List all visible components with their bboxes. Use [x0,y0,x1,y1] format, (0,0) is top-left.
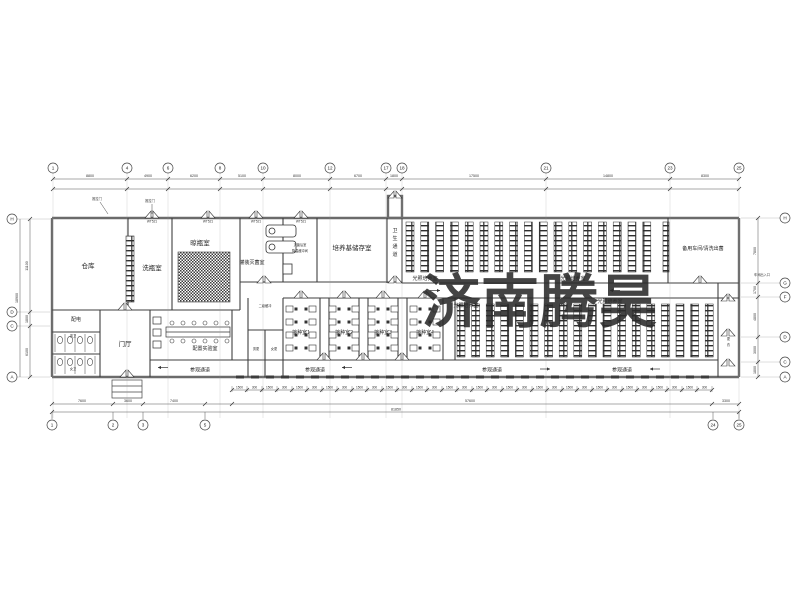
culture-rack [495,222,503,272]
culture-rack [584,222,592,272]
svg-text:WT521: WT521 [251,220,262,224]
svg-text:300: 300 [462,386,468,390]
window-symbol [596,376,604,379]
svg-text:1500: 1500 [596,386,603,390]
svg-text:18900: 18900 [15,293,19,303]
svg-text:300: 300 [642,386,648,390]
window-symbol [626,376,634,379]
door-symbol [693,276,707,283]
culture-rack [510,222,518,272]
culture-rack [554,222,562,272]
room-label-men-toilet: 男卫 [70,333,77,338]
window-symbol [386,376,394,379]
svg-text:1500: 1500 [356,386,363,390]
floorplan-drawing: 仓库 洗瓶室 晾瓶室 灌装灭菌室 灭菌后室 降温缓冲间 培养基储存室 卫生通道 … [0,0,800,600]
window-symbol [581,376,589,379]
svg-text:1500: 1500 [506,386,513,390]
svg-text:1500: 1500 [386,386,393,390]
window-symbol [236,376,244,379]
svg-text:81850: 81850 [391,408,401,412]
svg-text:1500: 1500 [266,386,273,390]
room-label-changing-corridor: 更衣 [727,336,731,347]
label-sliding-door-1: 推拉门 [92,196,102,201]
svg-text:3: 3 [142,423,145,428]
svg-text:300: 300 [672,386,678,390]
culture-rack [465,222,473,272]
svg-text:11100: 11100 [25,261,29,270]
svg-text:6: 6 [167,166,170,171]
door-symbol [721,359,735,366]
svg-text:21: 21 [543,166,549,171]
window-symbol [311,376,319,379]
svg-text:14800: 14800 [603,174,613,178]
window-symbol [266,376,274,379]
culture-rack [436,222,444,272]
svg-text:1500: 1500 [326,386,333,390]
window-symbol [341,376,349,379]
svg-text:300: 300 [312,386,318,390]
culture-rack [539,222,547,272]
svg-text:4800: 4800 [753,313,757,321]
svg-text:8800: 8800 [86,174,94,178]
svg-text:4: 4 [126,166,129,171]
svg-text:3000: 3000 [753,346,757,354]
svg-text:1500: 1500 [236,386,243,390]
svg-text:300: 300 [342,386,348,390]
svg-text:6700: 6700 [354,174,362,178]
svg-text:8300: 8300 [701,174,709,178]
svg-text:25: 25 [736,423,742,428]
svg-text:1500: 1500 [566,386,573,390]
svg-text:3600: 3600 [124,399,132,403]
window-symbol [416,376,424,379]
lab-bench [153,317,230,348]
room-label-visitor_corridor: 参观通道 [305,367,325,374]
door-symbol [337,291,351,298]
room-label-visitor_corridor: 参观通道 [482,367,502,374]
svg-text:300: 300 [702,386,708,390]
svg-text:2: 2 [112,423,115,428]
svg-text:300: 300 [582,386,588,390]
watermark-text: 济南腾昊 [422,270,658,335]
culture-rack [661,304,669,357]
svg-text:10: 10 [260,166,266,171]
room-label-prep-lab: 配置实验室 [192,345,217,352]
room-label-women-toilet: 女卫 [70,366,77,371]
window-symbol [326,376,334,379]
svg-text:8000: 8000 [293,174,301,178]
svg-text:1500: 1500 [416,386,423,390]
svg-text:24: 24 [710,423,716,428]
window-symbol [476,376,484,379]
culture-rack [421,222,429,272]
window-symbol [671,376,679,379]
window-symbol [461,376,469,379]
svg-text:300: 300 [252,386,258,390]
svg-text:300: 300 [552,386,558,390]
culture-rack [628,222,636,272]
svg-text:1: 1 [52,166,55,171]
svg-text:23: 23 [667,166,673,171]
svg-text:57600: 57600 [465,399,475,403]
svg-text:1800: 1800 [25,315,29,323]
svg-text:5100: 5100 [238,174,246,178]
culture-rack [480,222,488,272]
culture-rack [676,304,684,357]
room-label-secondary-buffer: 二级缓冲 [259,303,272,308]
culture-rack [643,222,651,272]
svg-text:25: 25 [736,166,742,171]
svg-text:F: F [784,295,787,300]
window-symbol [536,376,544,379]
leader-lines [100,202,152,214]
door-symbol [294,291,308,298]
svg-text:3300: 3300 [722,399,730,403]
label-sliding-door-2: 推拉门 [145,198,155,203]
generated-details: 14681012171821232512352425HDCAHGFDCA8800… [7,163,790,430]
svg-text:1500: 1500 [296,386,303,390]
door-symbol [118,303,132,310]
culture-rack [691,304,699,357]
window-symbol [446,376,454,379]
room-label-men-changing: 男更 [253,346,260,351]
room-label-spare-workshop: 备用车间/清洗出菌 [682,245,723,252]
window-symbol [611,376,619,379]
svg-text:7400: 7400 [170,399,178,403]
svg-text:300: 300 [432,386,438,390]
room-label-visitor_corridor: 参观通道 [190,367,210,374]
svg-text:300: 300 [522,386,528,390]
floorplan-sheet: 仓库 洗瓶室 晾瓶室 灌装灭菌室 灭菌后室 降温缓冲间 培养基储存室 卫生通道 … [0,0,800,600]
door-symbol [376,291,390,298]
svg-text:300: 300 [282,386,288,390]
room-label-bottle-wash: 洗瓶室 [142,263,162,272]
svg-text:1500: 1500 [686,386,693,390]
room-label-hygiene-corridor: 卫生通道 [392,228,397,258]
svg-text:7600: 7600 [78,399,86,403]
window-symbol [296,376,304,379]
window-symbol [656,376,664,379]
room-label-medium-storage: 培养基储存室 [333,243,373,252]
window-symbol [491,376,499,379]
svg-text:1: 1 [51,423,54,428]
window-symbol [431,376,439,379]
window-symbol [371,376,379,379]
svg-text:WT521: WT521 [296,220,307,224]
room-label-warehouse: 仓库 [82,261,96,270]
room-label-bottle-dry: 晾瓶室 [190,238,210,247]
window-symbol [551,376,559,379]
svg-text:H: H [10,217,13,222]
svg-text:1500: 1500 [446,386,453,390]
window-symbol [401,376,409,379]
svg-text:5: 5 [204,423,207,428]
window-symbol [521,376,529,379]
room-label-cooling-buffer: 降温缓冲间 [292,248,308,253]
room-label-filling-sterilize: 灌装灭菌室 [239,259,264,266]
culture-rack [524,222,532,272]
svg-text:17: 17 [383,166,389,171]
svg-text:7800: 7800 [753,247,757,255]
window-symbol [251,376,259,379]
svg-text:1800: 1800 [753,366,757,374]
label-workshop-entrance: 车间出入口 [754,272,770,277]
svg-text:300: 300 [492,386,498,390]
culture-rack [705,304,713,357]
culture-rack [406,222,414,272]
room-label-power-room: 配电 [71,316,81,323]
svg-text:12: 12 [327,166,333,171]
window-symbol [686,376,694,379]
svg-text:300: 300 [402,386,408,390]
svg-text:300: 300 [372,386,378,390]
svg-text:300: 300 [612,386,618,390]
window-symbol [566,376,574,379]
svg-text:4900: 4900 [144,174,152,178]
svg-text:1500: 1500 [626,386,633,390]
svg-text:18: 18 [399,166,405,171]
culture-rack [450,222,458,272]
svg-text:17500: 17500 [469,174,479,178]
window-symbol [641,376,649,379]
culture-rack [569,222,577,272]
room-label-entrance-hall: 门厅 [119,339,133,348]
culture-rack [613,222,621,272]
svg-text:8: 8 [219,166,222,171]
svg-text:1700: 1700 [753,286,757,294]
svg-text:G: G [783,281,787,286]
drying-platform-hatch [178,252,230,302]
svg-text:WT521: WT521 [147,220,158,224]
svg-text:WT521: WT521 [203,220,214,224]
door-symbol [721,329,735,336]
svg-text:6100: 6100 [25,348,29,356]
window-symbol [356,376,364,379]
room-label-women-changing: 女更 [271,346,278,351]
svg-text:1500: 1500 [476,386,483,390]
room-label-visitor_corridor: 参观通道 [612,367,632,374]
window-symbol [701,376,709,379]
culture-rack [598,222,606,272]
svg-text:1500: 1500 [536,386,543,390]
svg-text:H: H [783,216,786,221]
svg-text:1500: 1500 [656,386,663,390]
window-symbol [281,376,289,379]
rack-strip [663,222,669,272]
svg-text:1800: 1800 [390,174,398,178]
room-label-post-sterilize: 灭菌后室 [294,242,307,247]
svg-text:6200: 6200 [190,174,198,178]
window-symbol [506,376,514,379]
